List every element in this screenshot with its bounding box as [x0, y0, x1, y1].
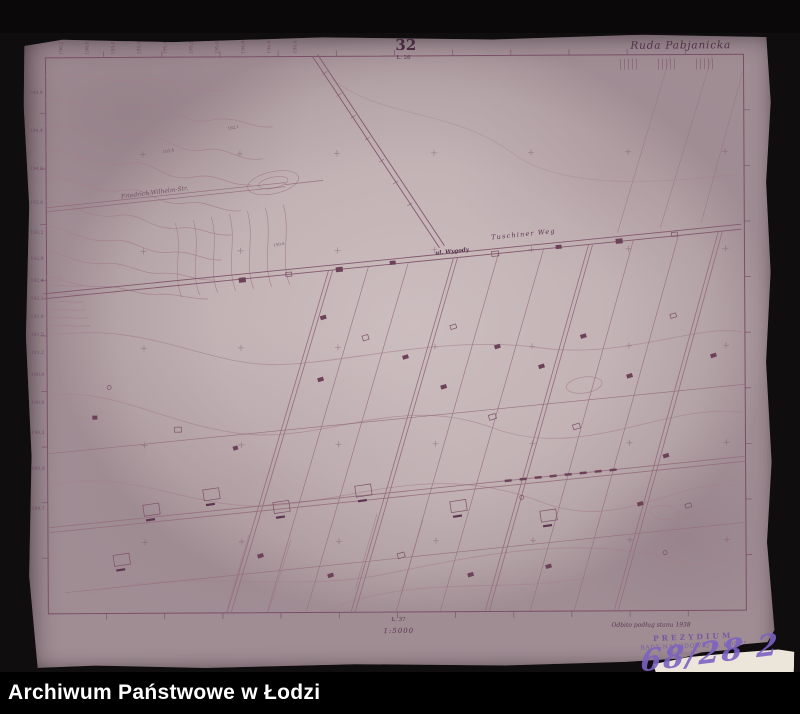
slope-hachures: [620, 58, 712, 69]
svg-text:196,2: 196,2: [58, 42, 64, 55]
svg-text:195,8: 195,8: [110, 41, 116, 54]
svg-text:194,0: 194,0: [30, 166, 43, 172]
street-label-wygody: ul. Wygody: [435, 247, 470, 257]
svg-text:190,9: 190,9: [31, 372, 44, 378]
svg-text:194,8: 194,8: [240, 41, 246, 54]
edition-note: Odbito podług stanu 1938: [611, 621, 690, 628]
street-label-tuschiner-weg: Tuschiner Weg: [491, 227, 556, 242]
sheet-code-bottom: Ł. 37: [391, 617, 406, 623]
svg-text:194,8: 194,8: [29, 90, 42, 96]
contour-lines-lower: [48, 77, 744, 613]
sheet-number: 32: [395, 36, 416, 54]
svg-text:190,6: 190,6: [31, 400, 44, 406]
svg-text:193,4: 193,4: [162, 147, 175, 154]
svg-text:190,0: 190,0: [31, 466, 44, 472]
contour-lines-hill: [46, 73, 302, 326]
svg-text:190,3: 190,3: [31, 430, 44, 436]
sheet-code-top: Ł. 26: [396, 55, 411, 61]
archive-footer-bar: Archiwum Państwowe w Łodzi: [0, 672, 800, 714]
svg-text:193,6: 193,6: [30, 200, 43, 206]
parcel-outlines: [113, 483, 558, 566]
svg-text:194,4: 194,4: [30, 128, 43, 134]
top-elevation-numbers: 196,2 196,0 195,8 195,6 195,4 195,2 195,…: [58, 40, 298, 54]
svg-text:194,6: 194,6: [266, 40, 272, 53]
svg-text:192,4: 192,4: [30, 278, 43, 284]
svg-text:190,6: 190,6: [273, 241, 286, 248]
svg-text:195,4: 195,4: [162, 41, 168, 54]
street-grid: [45, 54, 746, 613]
svg-text:196,0: 196,0: [84, 41, 90, 54]
svg-text:192,1: 192,1: [31, 296, 44, 302]
svg-text:191,2: 191,2: [31, 350, 44, 356]
archive-name-label: Archiwum Państwowe w Łodzi: [0, 681, 320, 705]
svg-text:195,6: 195,6: [136, 41, 142, 54]
svg-text:191,5: 191,5: [31, 332, 44, 338]
scale-label: 1:5000: [383, 627, 414, 635]
svg-text:192,1: 192,1: [227, 124, 239, 131]
svg-text:192,8: 192,8: [30, 256, 43, 262]
left-elevation-numbers: 194,8 194,4 194,0 193,6 193,2 192,8 192,…: [29, 90, 44, 512]
svg-text:189,7: 189,7: [32, 506, 45, 512]
svg-text:193,2: 193,2: [30, 230, 43, 236]
map-sheet-paper: 32 Ł. 26 Ruda Pabjanicka Ł. 37 1:5000 Fr…: [22, 32, 775, 670]
svg-text:195,0: 195,0: [214, 41, 220, 54]
parcel-name-marks: [116, 498, 553, 572]
svg-text:195,2: 195,2: [188, 41, 194, 54]
svg-text:191,8: 191,8: [31, 314, 44, 320]
map-ink: 32 Ł. 26 Ruda Pabjanicka Ł. 37 1:5000 Fr…: [22, 32, 775, 670]
scan-background-top: [0, 0, 800, 33]
region-label: Ruda Pabjanicka: [629, 39, 731, 52]
buildings: [91, 232, 718, 580]
road-diagonal-north: [312, 54, 444, 249]
svg-text:194,4: 194,4: [292, 40, 298, 53]
